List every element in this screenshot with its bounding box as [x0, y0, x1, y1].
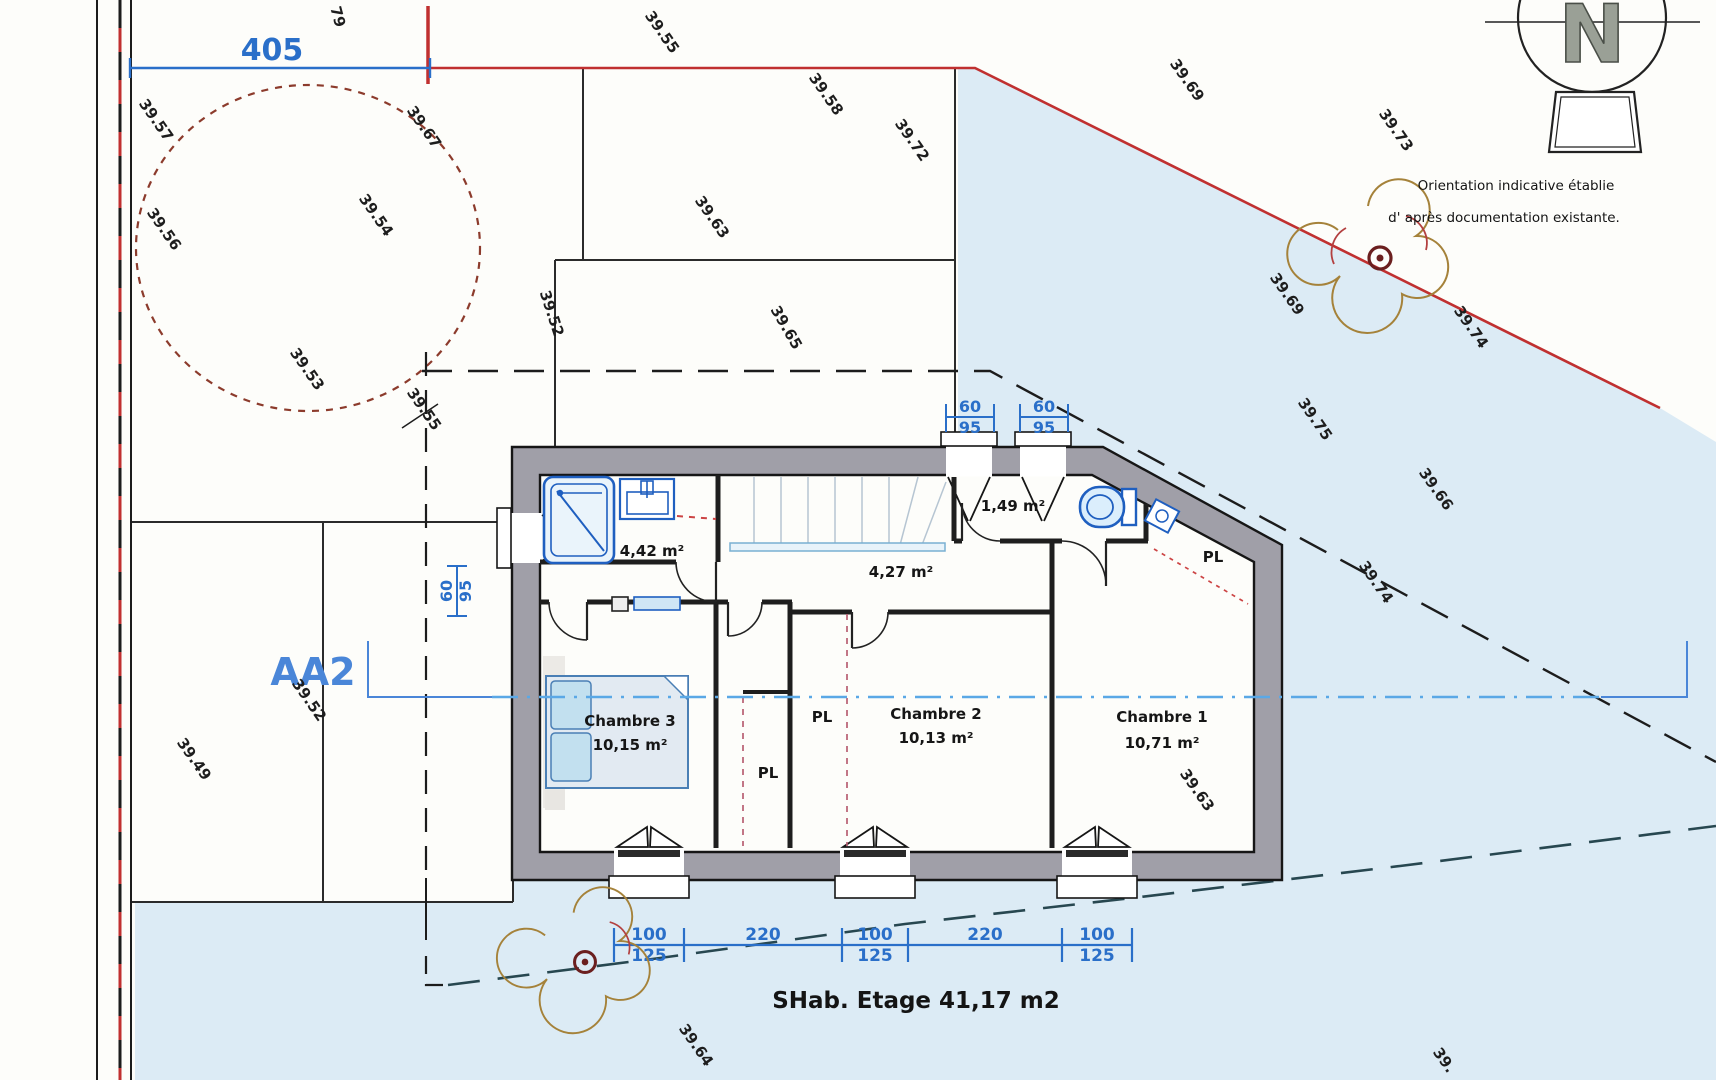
dimension-label-405: 405: [241, 33, 304, 68]
bedroom2-name: Chambre 2: [890, 705, 981, 723]
stair-handrail: [730, 543, 945, 551]
svg-text:39.55: 39.55: [403, 385, 445, 434]
north-compass: N Orientation indicative établie d' aprè…: [1388, 0, 1700, 226]
closet-label-3: PL: [1203, 548, 1224, 566]
svg-text:39.54: 39.54: [355, 191, 397, 240]
shower: [544, 477, 614, 563]
closet-label-1: PL: [758, 764, 779, 782]
floor-plan-sheet: 405 79: [0, 0, 1716, 1080]
svg-text:95: 95: [456, 580, 475, 602]
svg-text:39.63: 39.63: [691, 193, 733, 242]
closet-strip-door: [728, 602, 762, 636]
bed: [543, 656, 688, 810]
svg-text:39.58: 39.58: [805, 70, 847, 119]
section-label: AA2: [270, 650, 355, 694]
plan-drawing: 405 79: [0, 0, 1716, 1080]
svg-text:39.52: 39.52: [536, 288, 568, 339]
svg-text:60: 60: [437, 580, 456, 602]
north-caption-1: Orientation indicative établie: [1418, 178, 1615, 194]
north-letter: N: [1559, 0, 1626, 81]
svg-text:95: 95: [1033, 418, 1055, 437]
bedroom1-name: Chambre 1: [1116, 708, 1207, 726]
bedroom3-name: Chambre 3: [584, 712, 675, 730]
svg-text:39.56: 39.56: [143, 205, 185, 254]
svg-text:60: 60: [1033, 397, 1055, 416]
boundary-dimension-405: 405: [130, 33, 430, 78]
sink: [620, 479, 674, 519]
bottom-window-1: [609, 827, 689, 898]
svg-text:60: 60: [959, 397, 981, 416]
bedroom1-door: [1062, 541, 1106, 586]
hall-area: 4,27 m²: [869, 563, 933, 581]
svg-text:220: 220: [967, 925, 1003, 945]
window-dimension-left: 60 95: [437, 566, 475, 616]
floor-area-summary: SHab. Etage 41,17 m2: [772, 988, 1060, 1014]
bedroom2-area: 10,13 m²: [899, 729, 974, 747]
svg-text:220: 220: [745, 925, 781, 945]
parcel-boundary-left: [97, 0, 131, 1080]
bathroom-area: 4,42 m²: [620, 542, 684, 560]
svg-text:39.69: 39.69: [1166, 56, 1208, 105]
wc-area: 1,49 m²: [981, 497, 1045, 515]
svg-text:39.53: 39.53: [286, 345, 328, 394]
svg-text:100: 100: [857, 925, 893, 945]
boundary-note-79: 79: [326, 4, 349, 29]
svg-text:125: 125: [1079, 946, 1115, 966]
svg-text:39.55: 39.55: [641, 8, 683, 57]
doors: [549, 503, 1106, 648]
svg-text:95: 95: [959, 418, 981, 437]
bedroom3-area: 10,15 m²: [593, 736, 668, 754]
svg-text:125: 125: [857, 946, 893, 966]
washbasin-unit: [612, 597, 680, 611]
svg-text:39.65: 39.65: [767, 302, 806, 352]
toilet: [1080, 487, 1136, 527]
bedroom2-door: [852, 612, 888, 648]
svg-text:39.49: 39.49: [173, 735, 215, 784]
svg-text:39.63: 39.63: [1176, 766, 1218, 815]
interior-walls: [540, 475, 1148, 848]
bedroom3-door: [549, 602, 587, 640]
closet-label-2: PL: [812, 708, 833, 726]
svg-text:39.57: 39.57: [135, 96, 177, 145]
svg-text:39.72: 39.72: [891, 116, 933, 165]
bathroom-door: [676, 562, 716, 602]
svg-text:39.67: 39.67: [403, 103, 445, 152]
bedroom1-area: 10,71 m²: [1125, 734, 1200, 752]
svg-text:100: 100: [631, 925, 667, 945]
north-caption-2: d' après documentation existante.: [1388, 210, 1620, 226]
bottom-window-3: [1057, 827, 1137, 898]
svg-text:39.73: 39.73: [1375, 106, 1417, 155]
svg-text:100: 100: [1079, 925, 1115, 945]
bottom-window-2: [835, 827, 915, 898]
